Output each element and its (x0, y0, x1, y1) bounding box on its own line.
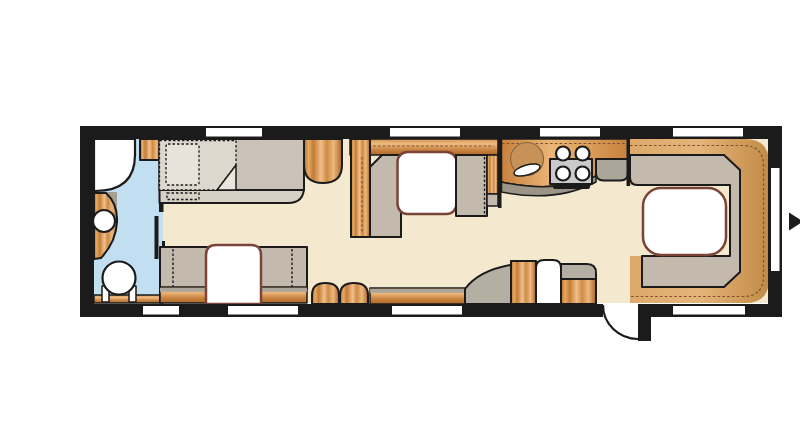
cabinet-b-top (561, 264, 596, 279)
side-dinette (160, 245, 307, 304)
window-bottom-2 (228, 306, 298, 315)
entry-door-post (638, 304, 651, 341)
hob-control-ledge (553, 184, 590, 189)
hob-burner-2 (576, 147, 590, 161)
washroom-cabinet (140, 139, 161, 160)
kitchen-end-shelf (596, 159, 628, 181)
hob-burner-4 (576, 167, 590, 181)
mid-dinette-table (398, 152, 457, 214)
entry-door-swing (603, 305, 638, 339)
rear-lounge-table (643, 188, 726, 255)
hob-burner-3 (556, 167, 570, 181)
caravan-floorplan (40, 16, 800, 445)
wall-left (80, 126, 94, 317)
window-top-2 (390, 128, 460, 137)
mid-dinette-seat-right (456, 155, 487, 216)
side-dinette-table (206, 245, 261, 304)
mid-dinette-wardrobe-right (487, 155, 498, 194)
hob-burner-1 (556, 147, 570, 161)
mid-dinette-wardrobe-left (351, 139, 370, 237)
floorplan-canvas (40, 16, 800, 445)
window-top-4 (673, 128, 743, 137)
fridge (536, 260, 561, 304)
ottoman-1 (312, 283, 339, 304)
window-top-1 (206, 128, 262, 137)
cabinet-b (561, 279, 596, 304)
ottoman-2 (340, 283, 368, 304)
entrance-units (511, 260, 596, 304)
washbasin (93, 210, 115, 232)
rear-lounge (630, 139, 769, 303)
window-bottom-1 (143, 306, 179, 315)
bedroom-wardrobe (304, 139, 342, 183)
window-right (771, 168, 780, 271)
cabinet-a (511, 261, 536, 304)
direction-arrow-icon (789, 213, 800, 231)
washroom-door-leaf (155, 216, 159, 259)
window-bottom-3 (392, 306, 462, 315)
toilet-bowl (103, 262, 136, 295)
washroom (93, 139, 165, 303)
mid-dinette-step (487, 194, 498, 206)
window-bottom-4 (673, 306, 745, 315)
window-top-3 (540, 128, 600, 137)
bed-pillow (166, 144, 199, 185)
